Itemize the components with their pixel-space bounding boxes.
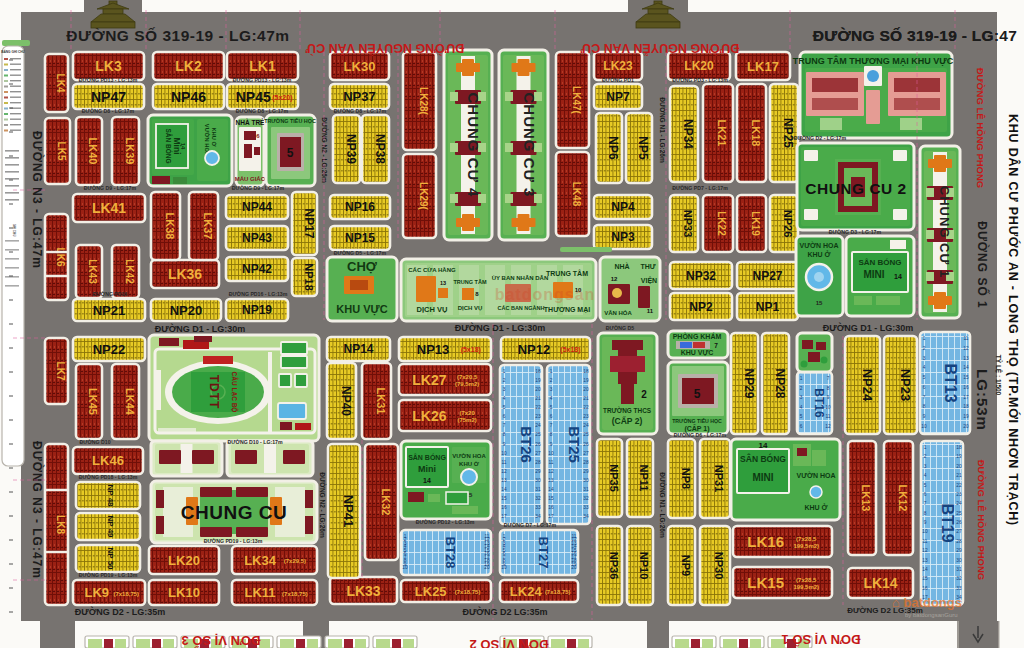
svg-text:LK32: LK32 [380, 489, 392, 516]
svg-text:8: 8 [827, 386, 830, 391]
svg-text:8: 8 [550, 432, 553, 437]
svg-text:27: 27 [535, 451, 541, 456]
svg-text:NP42: NP42 [242, 262, 272, 276]
svg-text:VĂN HÓA: VĂN HÓA [604, 309, 632, 316]
svg-text:15: 15 [816, 300, 823, 306]
svg-text:ĐƯỜNG D1 - LG:30m: ĐƯỜNG D1 - LG:30m [455, 322, 546, 333]
svg-text:LK6: LK6 [55, 248, 66, 267]
svg-text:LK45: LK45 [87, 388, 99, 415]
svg-text:LK2: LK2 [175, 58, 202, 74]
svg-text:28: 28 [535, 460, 541, 465]
svg-text:17: 17 [501, 514, 507, 519]
svg-text:7: 7 [503, 423, 506, 428]
svg-text:NP16: NP16 [345, 200, 375, 214]
svg-text:CHUNG CU: CHUNG CU [181, 502, 287, 523]
svg-text:LK29(: LK29( [418, 182, 429, 210]
svg-text:33: 33 [535, 505, 541, 510]
svg-text:21: 21 [583, 396, 589, 401]
svg-text:ĐƯỜNG D9 - LG:17m: ĐƯỜNG D9 - LG:17m [232, 184, 285, 191]
svg-text:6: 6 [924, 492, 927, 497]
svg-text:27: 27 [956, 529, 962, 534]
svg-text:(79,5m2): (79,5m2) [455, 381, 479, 387]
svg-text:NP14: NP14 [343, 342, 373, 356]
svg-text:ĐƯỜNG NGUYỄN VĂN CỪ: ĐƯỜNG NGUYỄN VĂN CỪ [580, 41, 739, 56]
svg-text:ĐƯỜNG LÊ HỒNG PHONG: ĐƯỜNG LÊ HỒNG PHONG [975, 68, 986, 189]
svg-text:TRUNG TÂM: TRUNG TÂM [546, 269, 588, 277]
svg-text:TRƯỜNG TIỂU HỌC: TRƯỜNG TIỂU HỌC [264, 117, 316, 124]
svg-text:CHUNG CU 2: CHUNG CU 2 [805, 180, 906, 197]
svg-text:LK31: LK31 [375, 388, 387, 415]
svg-text:LK34: LK34 [244, 553, 277, 568]
svg-text:NP 49: NP 49 [106, 515, 115, 538]
svg-text:NP1: NP1 [756, 300, 780, 314]
svg-text:7: 7 [827, 376, 830, 381]
svg-text:4: 4 [924, 473, 927, 478]
svg-text:KHU Ở: KHU Ở [459, 461, 480, 467]
svg-text:24: 24 [583, 423, 589, 428]
svg-text:BT19: BT19 [939, 503, 956, 542]
svg-text:LK21: LK21 [716, 120, 728, 147]
svg-text:21: 21 [956, 473, 962, 478]
svg-text:2: 2 [923, 346, 926, 351]
svg-text:KHU Ở: KHU Ở [211, 127, 217, 146]
svg-text:CHUNG CƯ 1: CHUNG CƯ 1 [937, 186, 952, 278]
svg-text:13: 13 [963, 356, 969, 361]
svg-text:3: 3 [924, 464, 927, 469]
svg-text:11: 11 [502, 460, 507, 465]
svg-text:12: 12 [611, 276, 618, 282]
svg-text:20: 20 [956, 464, 962, 469]
svg-text:12: 12 [501, 469, 507, 474]
svg-text:1: 1 [924, 445, 927, 450]
svg-text:NP36: NP36 [608, 552, 620, 580]
svg-text:NP44: NP44 [242, 200, 272, 214]
svg-text:ĐƯỜNG D2 LG:35m: ĐƯỜNG D2 LG:35m [462, 606, 547, 617]
svg-text:NP43: NP43 [242, 231, 272, 245]
svg-text:17: 17 [548, 514, 554, 519]
svg-text:34: 34 [956, 595, 962, 600]
svg-text:LK9: LK9 [84, 585, 109, 600]
svg-text:25: 25 [535, 432, 541, 437]
svg-text:2: 2 [641, 389, 647, 400]
svg-text:ĐƯỜNG N2 - LG:26m: ĐƯỜNG N2 - LG:26m [319, 472, 327, 538]
svg-text:20: 20 [484, 565, 490, 570]
svg-text:NP40: NP40 [339, 386, 353, 416]
svg-text:9: 9 [924, 520, 927, 525]
svg-text:SÂN BÓNG: SÂN BÓNG [858, 258, 901, 267]
svg-text:(7x28,5: (7x28,5 [796, 577, 817, 583]
svg-text:NP7: NP7 [606, 90, 630, 104]
svg-text:28: 28 [583, 460, 589, 465]
svg-text:5: 5 [503, 405, 506, 410]
svg-text:28: 28 [956, 539, 962, 544]
svg-text:ĐƯỜNG D5: ĐƯỜNG D5 [606, 324, 634, 331]
svg-text:3: 3 [923, 356, 926, 361]
svg-text:11: 11 [647, 308, 654, 314]
svg-text:12: 12 [922, 548, 928, 553]
svg-text:VƯỜN HOA: VƯỜN HOA [796, 471, 835, 479]
svg-text:ĐƠN VỊ SỐ 3: ĐƠN VỊ SỐ 3 [182, 633, 261, 648]
svg-text:4: 4 [923, 365, 926, 370]
svg-text:32: 32 [535, 496, 541, 501]
svg-text:NP2: NP2 [689, 300, 713, 314]
svg-text:NP34: NP34 [681, 119, 695, 149]
svg-text:LK11: LK11 [245, 585, 276, 600]
svg-text:NP17: NP17 [302, 208, 316, 238]
svg-text:NP26: NP26 [782, 210, 794, 238]
svg-text:22: 22 [583, 405, 589, 410]
svg-text:13: 13 [501, 478, 507, 483]
svg-text:CÁC BAN NGÀNH: CÁC BAN NGÀNH [497, 305, 544, 311]
svg-text:BẢNG GHI CHÚ: BẢNG GHI CHÚ [1, 49, 25, 54]
svg-text:ĐƯỜNG D9 - LG:17m: ĐƯỜNG D9 - LG:17m [84, 184, 137, 191]
svg-text:5: 5 [550, 405, 553, 410]
svg-text:BT16: BT16 [812, 388, 826, 418]
svg-text:15: 15 [548, 496, 554, 501]
svg-text:LK25: LK25 [415, 584, 447, 599]
svg-text:ĐƯỜNG D10: ĐƯỜNG D10 [79, 438, 110, 445]
svg-text:NP38: NP38 [373, 134, 387, 164]
svg-text:7: 7 [924, 501, 927, 506]
svg-text:30: 30 [535, 478, 541, 483]
svg-text:7: 7 [923, 395, 926, 400]
svg-text:batdongsan: batdongsan [495, 286, 596, 303]
svg-text:Mini: Mini [418, 464, 436, 474]
svg-text:NP13: NP13 [417, 342, 450, 357]
svg-text:ĐƠN VỊ SỐ 1: ĐƠN VỊ SỐ 1 [782, 632, 861, 647]
svg-text:(5x18): (5x18) [560, 346, 580, 354]
svg-text:1: 1 [800, 376, 803, 381]
svg-text:15: 15 [501, 496, 507, 501]
svg-text:LK38: LK38 [164, 213, 176, 240]
svg-text:LK41: LK41 [92, 200, 126, 216]
svg-text:LK23: LK23 [603, 59, 633, 73]
svg-text:CHUNG CƯ 4: CHUNG CƯ 4 [465, 93, 482, 198]
svg-text:1: 1 [923, 336, 926, 341]
svg-text:(7x18,75): (7x18,75) [282, 591, 308, 597]
svg-text:ĐƯỜNG D8 - LG:17m: ĐƯỜNG D8 - LG:17m [334, 107, 387, 114]
svg-text:ĐƯỜNG PD16 - LG:13m: ĐƯỜNG PD16 - LG:13m [229, 290, 288, 297]
svg-text:19: 19 [535, 378, 541, 383]
svg-text:LK16: LK16 [747, 533, 784, 550]
svg-text:5: 5 [694, 387, 701, 401]
svg-text:16: 16 [501, 505, 507, 510]
svg-text:NP 48: NP 48 [106, 484, 115, 507]
svg-text:ĐƯỜNG SỐ 319-19 - LG:47m: ĐƯỜNG SỐ 319-19 - LG:47m [66, 27, 289, 44]
svg-text:ĐƯỜNG PD3 - LG:13m: ĐƯỜNG PD3 - LG:13m [672, 76, 728, 83]
svg-text:9: 9 [550, 442, 553, 447]
svg-text:23: 23 [535, 414, 541, 419]
svg-text:34: 34 [583, 514, 589, 519]
svg-text:NP45: NP45 [236, 89, 271, 105]
svg-text:BT26: BT26 [518, 426, 535, 463]
svg-text:LK26: LK26 [412, 408, 446, 424]
svg-text:13: 13 [548, 478, 554, 483]
svg-text:26: 26 [956, 520, 962, 525]
svg-text:ĐƯỜNG PD19 - LG:13m: ĐƯỜNG PD19 - LG:13m [79, 571, 138, 578]
svg-text:NP35: NP35 [608, 464, 620, 492]
svg-text:29: 29 [535, 469, 541, 474]
svg-text:KHU Ở: KHU Ở [804, 503, 827, 511]
svg-text:CHUNG CƯ 3: CHUNG CƯ 3 [521, 93, 538, 198]
svg-text:4: 4 [503, 396, 506, 401]
svg-text:8: 8 [503, 432, 506, 437]
svg-text:LK47(: LK47( [571, 86, 582, 114]
svg-text:6: 6 [923, 385, 926, 390]
svg-text:1: 1 [550, 369, 553, 374]
svg-text:14: 14 [759, 441, 768, 450]
svg-text:ĐƯỜNG PD12 - LG:13m: ĐƯỜNG PD12 - LG:13m [416, 518, 475, 525]
svg-text:(5x18): (5x18) [461, 346, 481, 354]
svg-text:LG:53m: LG:53m [974, 369, 991, 431]
svg-text:LK22: LK22 [716, 211, 727, 236]
svg-text:8: 8 [923, 404, 926, 409]
svg-text:NP22: NP22 [93, 342, 126, 357]
svg-text:14: 14 [180, 143, 186, 150]
svg-text:by batdongsanGuru: by batdongsanGuru [905, 612, 958, 618]
svg-text:29: 29 [583, 469, 589, 474]
svg-text:DỊCH VỤ: DỊCH VỤ [417, 305, 448, 314]
svg-text:NP23: NP23 [898, 369, 913, 402]
svg-text:18: 18 [583, 369, 589, 374]
svg-text:LK46: LK46 [92, 453, 124, 468]
svg-text:NP 50: NP 50 [106, 547, 115, 570]
svg-text:(5x20): (5x20) [272, 94, 292, 102]
svg-text:NP37: NP37 [343, 89, 376, 104]
svg-text:10: 10 [501, 565, 507, 570]
svg-text:LK20: LK20 [684, 59, 714, 73]
svg-text:NP8: NP8 [680, 468, 692, 489]
svg-text:22: 22 [956, 483, 962, 488]
svg-text:MINI: MINI [752, 472, 773, 483]
svg-text:11: 11 [923, 539, 928, 544]
svg-text:199,5m2): 199,5m2) [793, 584, 819, 590]
svg-text:(7x20: (7x20 [459, 410, 475, 416]
svg-text:LK3: LK3 [95, 58, 122, 74]
svg-text:LK15: LK15 [747, 574, 784, 591]
svg-text:NHÀ: NHÀ [614, 262, 629, 270]
svg-text:LK27: LK27 [412, 372, 446, 388]
svg-text:ĐƯỜNG D6 - LG:17m: ĐƯỜNG D6 - LG:17m [674, 431, 727, 438]
svg-text:13: 13 [922, 558, 928, 563]
svg-text:23: 23 [583, 414, 589, 419]
svg-text:24: 24 [956, 501, 962, 506]
svg-text:LK18: LK18 [750, 120, 762, 147]
svg-text:TỶ LỆ : 1/500: TỶ LỆ : 1/500 [995, 355, 1003, 396]
svg-text:ĐƯỜNG PD16: ĐƯỜNG PD16 [93, 290, 128, 297]
svg-text:ĐƯỜNG D1 - LG:30m: ĐƯỜNG D1 - LG:30m [155, 323, 246, 334]
svg-text:ĐƯỜNG D3 - LG:17m: ĐƯỜNG D3 - LG:17m [829, 228, 882, 235]
svg-text:NP11: NP11 [638, 465, 650, 492]
svg-text:1: 1 [503, 369, 506, 374]
svg-text:LK44: LK44 [124, 388, 136, 416]
svg-text:19: 19 [956, 454, 962, 459]
svg-text:ĐƠN VỊ SỐ 2: ĐƠN VỊ SỐ 2 [470, 637, 549, 648]
svg-text:NP18: NP18 [303, 263, 315, 291]
svg-text:PHÒNG KHÁM: PHÒNG KHÁM [673, 332, 722, 340]
svg-text:NP33: NP33 [682, 210, 694, 238]
svg-text:MẪU GIÁO: MẪU GIÁO [235, 176, 266, 182]
svg-text:15: 15 [963, 375, 969, 380]
svg-text:TRƯỜNG THCS: TRƯỜNG THCS [603, 406, 652, 414]
svg-text:NP25: NP25 [781, 118, 795, 148]
svg-text:NP30: NP30 [713, 552, 725, 580]
svg-text:LK14: LK14 [863, 575, 897, 591]
svg-text:ỦY BAN NHÂN DÂN: ỦY BAN NHÂN DÂN [492, 275, 549, 281]
svg-text:LK40: LK40 [87, 138, 99, 165]
svg-text:ĐƯỜNG D1 - LG:30m: ĐƯỜNG D1 - LG:30m [823, 322, 914, 333]
svg-text:ĐƯỜNG PD18 - LG:13m: ĐƯỜNG PD18 - LG:13m [79, 473, 138, 480]
svg-text:NP4: NP4 [611, 200, 635, 214]
svg-text:33: 33 [956, 586, 962, 591]
svg-text:5: 5 [924, 483, 927, 488]
svg-text:5: 5 [800, 414, 803, 419]
svg-text:LK42: LK42 [124, 259, 135, 284]
svg-text:NHÀ TRẺ: NHÀ TRẺ [236, 118, 266, 126]
svg-text:14: 14 [548, 487, 554, 492]
svg-text:(7x18,75): (7x18,75) [545, 589, 571, 595]
svg-text:19: 19 [583, 378, 589, 383]
svg-text:BT13: BT13 [942, 363, 959, 402]
svg-text:LK43: LK43 [87, 259, 98, 284]
svg-text:19: 19 [963, 414, 969, 419]
svg-text:ĐƯỜNG SỐ 319-19 - LG:47: ĐƯỜNG SỐ 319-19 - LG:47 [813, 27, 1017, 44]
svg-text:ĐƯỜNG D8 - LG:17m: ĐƯỜNG D8 - LG:17m [82, 107, 135, 114]
svg-text:8: 8 [924, 511, 927, 516]
svg-text:30: 30 [583, 478, 589, 483]
svg-text:(7x20,5: (7x20,5 [457, 374, 478, 380]
svg-text:LK7: LK7 [55, 362, 66, 381]
svg-text:LK36: LK36 [168, 266, 202, 282]
svg-text:11: 11 [549, 460, 554, 465]
svg-text:16: 16 [963, 385, 969, 390]
svg-text:27: 27 [583, 451, 589, 456]
svg-text:11: 11 [964, 336, 969, 341]
svg-text:LK30: LK30 [344, 59, 376, 74]
svg-text:10: 10 [921, 424, 927, 429]
svg-text:ĐƯỜNG LÊ HỒNG PHONG: ĐƯỜNG LÊ HỒNG PHONG [976, 460, 987, 581]
svg-text:9: 9 [503, 442, 506, 447]
svg-text:NP6: NP6 [606, 136, 620, 160]
svg-text:LK10: LK10 [168, 585, 200, 600]
svg-text:ĐƯỜNG PD1: ĐƯỜNG PD1 [602, 76, 634, 83]
svg-text:CÂU LẠC BỘ: CÂU LẠC BỘ [231, 372, 239, 413]
svg-text:3: 3 [503, 387, 506, 392]
svg-text:SÂN BÓNG: SÂN BÓNG [740, 453, 786, 464]
svg-text:LK17: LK17 [747, 59, 779, 74]
svg-text:VƯỜN HOA: VƯỜN HOA [799, 241, 838, 249]
svg-text:10: 10 [402, 565, 408, 570]
svg-text:31: 31 [956, 567, 962, 572]
svg-text:14: 14 [922, 567, 928, 572]
svg-text:CÁC CỬA HÀNG: CÁC CỬA HÀNG [408, 267, 456, 273]
svg-text:33: 33 [583, 505, 589, 510]
svg-text:16: 16 [548, 505, 554, 510]
svg-text:30: 30 [956, 558, 962, 563]
svg-text:DỊCH VỤ: DỊCH VỤ [458, 305, 483, 311]
svg-text:LK12: LK12 [897, 485, 909, 512]
svg-text:18: 18 [956, 445, 962, 450]
svg-text:THƯ: THƯ [640, 263, 655, 270]
svg-text:ĐƯỜNG PD13 - LG:13m: ĐƯỜNG PD13 - LG:13m [233, 76, 292, 83]
svg-text:KHU DÂN CƯ PHƯỚC AN - LONG THỌ: KHU DÂN CƯ PHƯỚC AN - LONG THỌ (TP.MỚI N… [1006, 114, 1021, 526]
svg-text:10: 10 [501, 451, 507, 456]
svg-text:NP47: NP47 [91, 89, 126, 105]
svg-text:9: 9 [827, 395, 830, 400]
svg-text:23: 23 [956, 492, 962, 497]
svg-text:17: 17 [963, 395, 969, 400]
svg-text:2: 2 [800, 386, 803, 391]
svg-text:32: 32 [583, 496, 589, 501]
svg-text:NP21: NP21 [93, 303, 126, 318]
svg-text:NP19: NP19 [242, 303, 272, 317]
svg-text:ĐƯỜNG PD19 - LG:13m: ĐƯỜNG PD19 - LG:13m [204, 537, 263, 544]
svg-text:ĐƯỜNG N2 - LG:26m: ĐƯỜNG N2 - LG:26m [321, 117, 329, 183]
svg-text:14: 14 [894, 273, 902, 280]
svg-text:LK39: LK39 [124, 138, 136, 165]
svg-text:16: 16 [922, 586, 928, 591]
svg-text:(CẤP 2): (CẤP 2) [612, 416, 643, 426]
svg-text:CHỢ: CHỢ [347, 259, 378, 274]
svg-text:20: 20 [583, 387, 589, 392]
svg-text:12: 12 [548, 469, 554, 474]
svg-text:LK13: LK13 [860, 485, 872, 512]
svg-text:ĐƯỜNG D2 - LG:35m: ĐƯỜNG D2 - LG:35m [75, 606, 166, 617]
svg-text:9: 9 [923, 414, 926, 419]
svg-text:LK37: LK37 [202, 213, 214, 240]
svg-text:NP5: NP5 [636, 136, 650, 160]
svg-text:24: 24 [535, 423, 541, 428]
svg-text:18: 18 [963, 404, 969, 409]
svg-text:5: 5 [923, 375, 926, 380]
svg-text:TDTT: TDTT [207, 375, 221, 410]
svg-text:199,5m2): 199,5m2) [793, 543, 819, 549]
svg-text:NP15: NP15 [345, 231, 375, 245]
svg-text:14: 14 [963, 365, 969, 370]
svg-text:THƯƠNG MẠI: THƯƠNG MẠI [544, 306, 590, 313]
svg-text:LK28(: LK28( [418, 87, 429, 115]
svg-text:14: 14 [423, 477, 431, 484]
svg-text:TRUNG TÂM: TRUNG TÂM [454, 279, 487, 285]
svg-text:(7x28,5: (7x28,5 [796, 536, 817, 542]
svg-text:LK5: LK5 [56, 142, 67, 161]
svg-text:ĐƯỜNG D7 - LG:17m: ĐƯỜNG D7 - LG:17m [504, 521, 557, 528]
svg-text:3: 3 [550, 387, 553, 392]
svg-text:ĐƯỜNG D2 - LG:17m: ĐƯỜNG D2 - LG:17m [794, 134, 847, 141]
svg-text:15: 15 [922, 576, 928, 581]
svg-text:6: 6 [550, 414, 553, 419]
svg-text:LK48: LK48 [571, 182, 582, 207]
svg-text:VIỆN: VIỆN [641, 276, 657, 284]
svg-text:(7x18,75): (7x18,75) [113, 591, 139, 597]
svg-text:2: 2 [924, 454, 927, 459]
svg-text:NP3: NP3 [611, 230, 635, 244]
svg-text:LK8: LK8 [55, 515, 66, 534]
svg-text:LK19: LK19 [750, 211, 761, 236]
svg-text:3: 3 [800, 395, 803, 400]
svg-text:LK4: LK4 [55, 74, 66, 93]
svg-text:4: 4 [800, 405, 803, 410]
svg-text:7: 7 [714, 342, 718, 349]
svg-text:BT28: BT28 [443, 537, 458, 569]
svg-text:KHU Ở: KHU Ở [807, 250, 830, 258]
svg-text:TRUNG TÂM THƯƠNG MẠI KHU VỰC: TRUNG TÂM THƯƠNG MẠI KHU VỰC [793, 55, 954, 66]
svg-text:MINI: MINI [863, 269, 884, 280]
svg-text:5: 5 [287, 146, 294, 160]
svg-text:ĐƯỜNG N3 - LG:47m: ĐƯỜNG N3 - LG:47m [30, 441, 45, 579]
svg-text:6: 6 [503, 414, 506, 419]
svg-text:20: 20 [963, 424, 969, 429]
